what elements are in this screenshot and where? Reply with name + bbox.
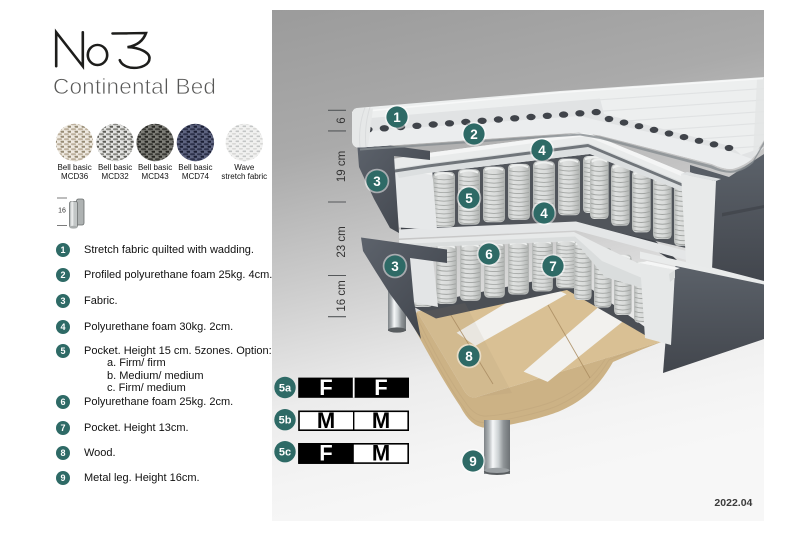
svg-text:23 cm: 23 cm [336, 226, 348, 257]
svg-text:5a: 5a [279, 383, 292, 395]
svg-text:Bell basic: Bell basic [178, 163, 212, 172]
svg-text:MCD74: MCD74 [182, 172, 210, 181]
svg-text:Wave: Wave [234, 163, 255, 172]
svg-text:8: 8 [465, 349, 473, 364]
svg-text:MCD43: MCD43 [142, 172, 170, 181]
svg-text:7: 7 [549, 259, 557, 274]
svg-text:M: M [372, 408, 390, 433]
svg-text:2022.04: 2022.04 [714, 497, 752, 509]
svg-text:5c: 5c [279, 447, 291, 459]
svg-text:3: 3 [391, 259, 399, 274]
svg-text:F: F [319, 375, 332, 400]
svg-text:9: 9 [469, 454, 477, 469]
svg-text:16: 16 [58, 208, 66, 215]
svg-text:5: 5 [465, 191, 473, 206]
svg-text:3: 3 [373, 174, 381, 189]
svg-text:16 cm: 16 cm [336, 280, 348, 311]
svg-text:4: 4 [540, 206, 548, 221]
svg-text:MCD36: MCD36 [61, 172, 89, 181]
svg-text:5b: 5b [279, 415, 292, 427]
svg-text:F: F [374, 375, 387, 400]
svg-text:1: 1 [393, 110, 401, 125]
svg-text:Bell basic: Bell basic [98, 163, 132, 172]
svg-text:M: M [317, 408, 335, 433]
svg-text:F: F [319, 441, 332, 466]
svg-text:6: 6 [485, 247, 493, 262]
svg-text:Bell basic: Bell basic [57, 163, 91, 172]
svg-text:Bell basic: Bell basic [138, 163, 172, 172]
svg-text:19 cm: 19 cm [336, 151, 348, 182]
svg-text:MCD32: MCD32 [102, 172, 130, 181]
svg-text:M: M [372, 441, 390, 466]
svg-text:4: 4 [538, 143, 546, 158]
svg-text:6: 6 [336, 117, 348, 123]
svg-text:2: 2 [470, 127, 478, 142]
svg-text:stretch fabric: stretch fabric [221, 172, 267, 181]
